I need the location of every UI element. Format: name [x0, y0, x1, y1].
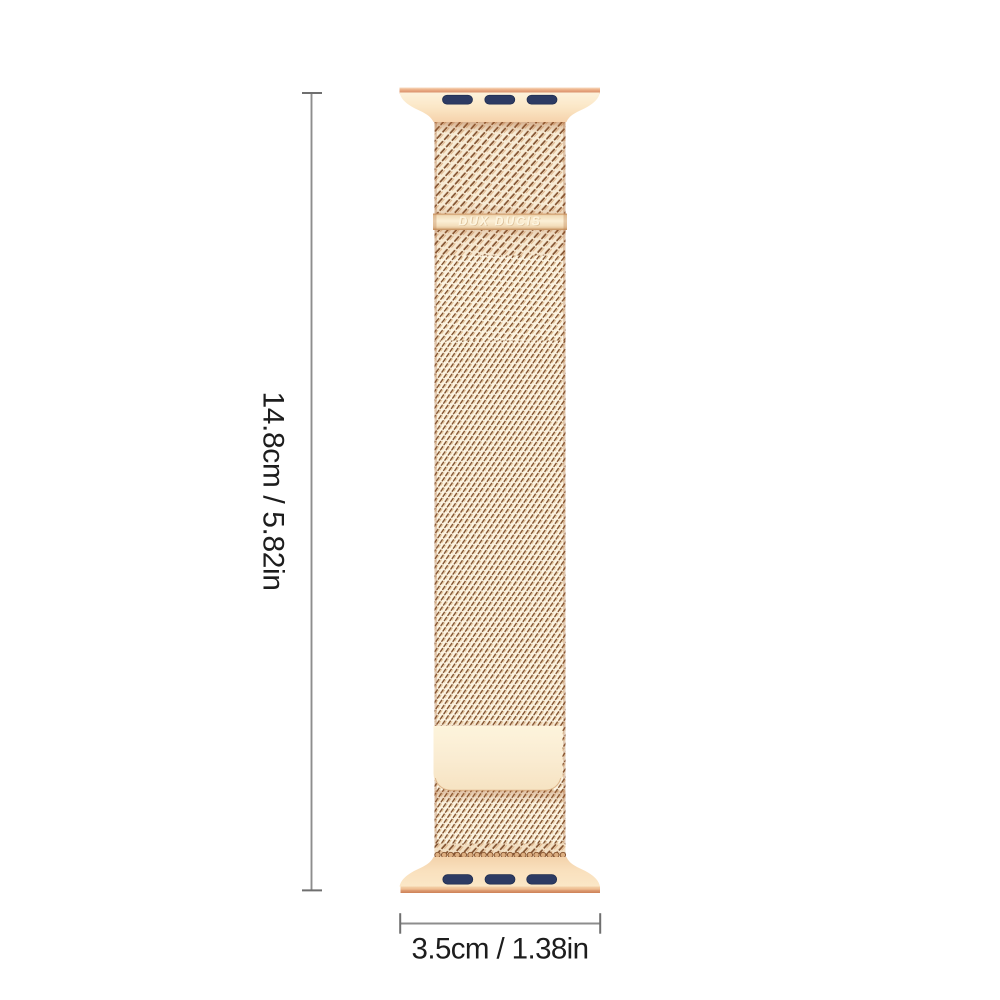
- svg-text:DUX DUCIS: DUX DUCIS: [458, 215, 541, 229]
- svg-text:14.8cm / 5.82in: 14.8cm / 5.82in: [257, 391, 290, 590]
- svg-text:3.5cm / 1.38in: 3.5cm / 1.38in: [412, 933, 589, 966]
